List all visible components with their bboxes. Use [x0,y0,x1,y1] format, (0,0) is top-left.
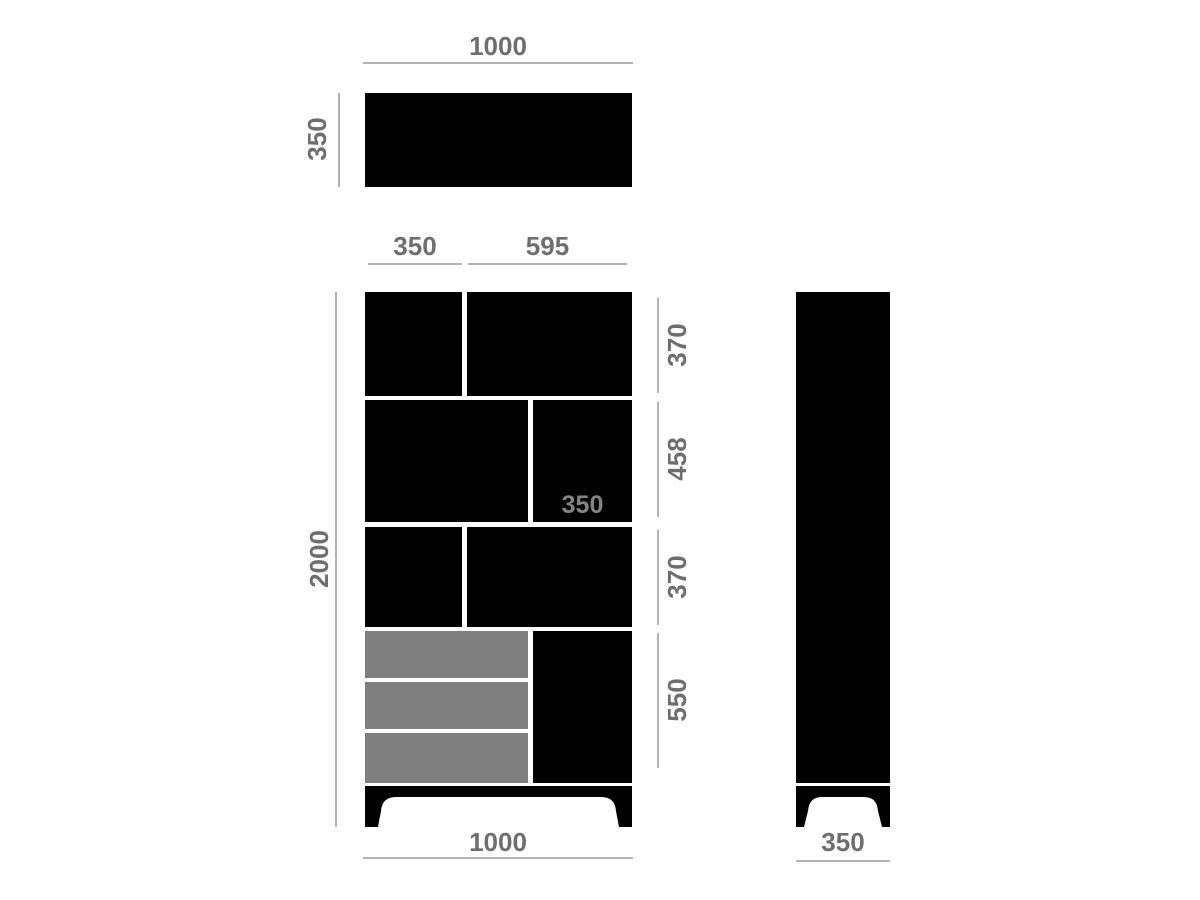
front-drawer-2 [365,682,528,729]
top-view-width-dim-line [363,62,633,64]
front-height-dim-label: 2000 [305,499,333,619]
front-row1-dim-line [657,298,659,393]
top-view-depth-dim-label: 350 [303,89,331,189]
front-compartment-row1-right [467,292,632,396]
front-left-column-dim-line [368,263,462,265]
front-row4-dim-label: 550 [663,650,691,750]
front-row2-dim-label: 458 [663,409,691,509]
front-compartment-row3-right [467,527,632,627]
front-width-dim-line [363,857,633,859]
front-left-column-dim-label: 350 [368,232,462,260]
front-drawer-1 [365,631,528,678]
front-compartment-row3-left [365,527,462,627]
front-compartment-row4-right [533,631,632,783]
top-view-width-dim-label: 1000 [363,32,633,60]
front-compartment-row2-left [365,400,528,522]
side-view-body [796,292,890,783]
dimension-drawing: 1000 350 350 595 2000 350 [0,0,1200,900]
side-depth-dim-line [796,860,890,862]
front-drawer-3 [365,733,528,783]
top-view-depth-dim-line [338,93,340,187]
front-row4-dim-line [657,633,659,768]
front-width-dim-label: 1000 [363,828,633,856]
front-base-legs [365,786,632,827]
front-compartment-row1-left [365,292,462,396]
front-row2-dim-line [657,402,659,517]
front-row1-dim-label: 370 [663,295,691,395]
front-row3-dim-line [657,530,659,625]
front-inner-depth-label: 350 [533,492,632,518]
top-view-panel [365,93,632,187]
front-right-column-dim-label: 595 [468,232,627,260]
front-right-column-dim-line [468,263,627,265]
front-row3-dim-label: 370 [663,527,691,627]
front-compartment-row2-right: 350 [533,400,632,522]
side-base-legs [796,786,890,827]
front-height-dim-line [335,292,337,827]
side-depth-dim-label: 350 [796,828,890,856]
